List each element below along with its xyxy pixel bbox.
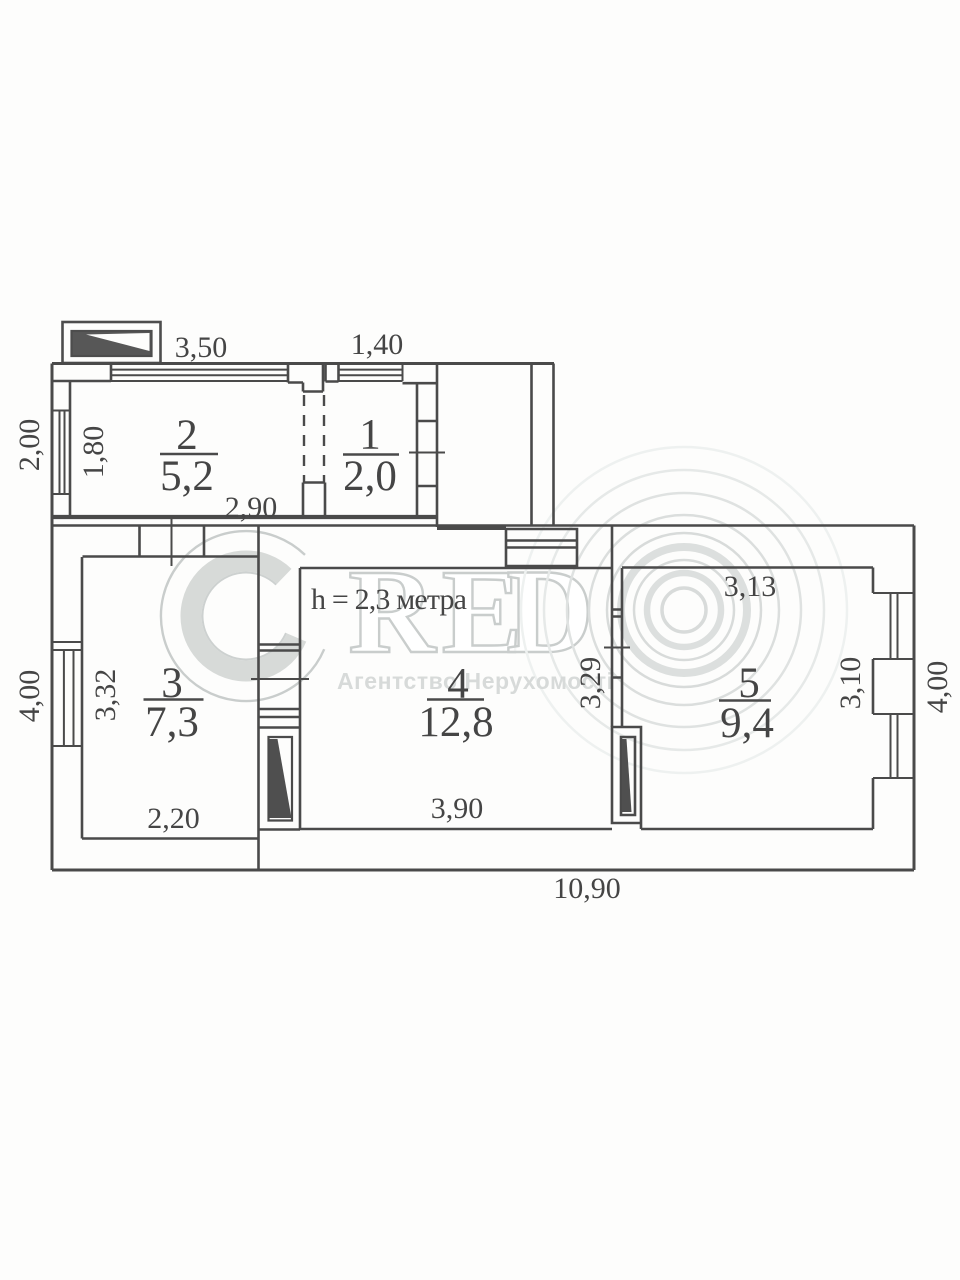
svg-text:2,0: 2,0 [343, 453, 397, 500]
svg-text:3,13: 3,13 [724, 570, 777, 603]
svg-text:3,29: 3,29 [574, 657, 607, 710]
svg-text:3,10: 3,10 [834, 657, 867, 710]
svg-text:3,50: 3,50 [175, 331, 228, 364]
svg-text:2,20: 2,20 [147, 802, 200, 835]
svg-text:4,00: 4,00 [921, 661, 954, 714]
svg-text:4,00: 4,00 [13, 670, 46, 723]
svg-text:12,8: 12,8 [418, 699, 493, 746]
svg-text:7,3: 7,3 [145, 699, 199, 746]
svg-text:9,4: 9,4 [720, 700, 774, 747]
svg-text:3,90: 3,90 [431, 792, 484, 825]
svg-text:2,00: 2,00 [13, 419, 46, 472]
svg-text:Агентство Нерухомості: Агентство Нерухомості [337, 668, 613, 694]
svg-text:3,32: 3,32 [89, 669, 122, 722]
svg-text:1: 1 [359, 412, 381, 459]
svg-text:2,90: 2,90 [225, 491, 278, 524]
svg-text:2: 2 [176, 412, 198, 459]
svg-text:10,90: 10,90 [553, 872, 621, 905]
svg-text:5,2: 5,2 [160, 453, 214, 500]
svg-text:h = 2,3 метра: h = 2,3 метра [311, 583, 467, 616]
svg-text:1,80: 1,80 [77, 426, 110, 479]
svg-text:1,40: 1,40 [351, 328, 404, 361]
